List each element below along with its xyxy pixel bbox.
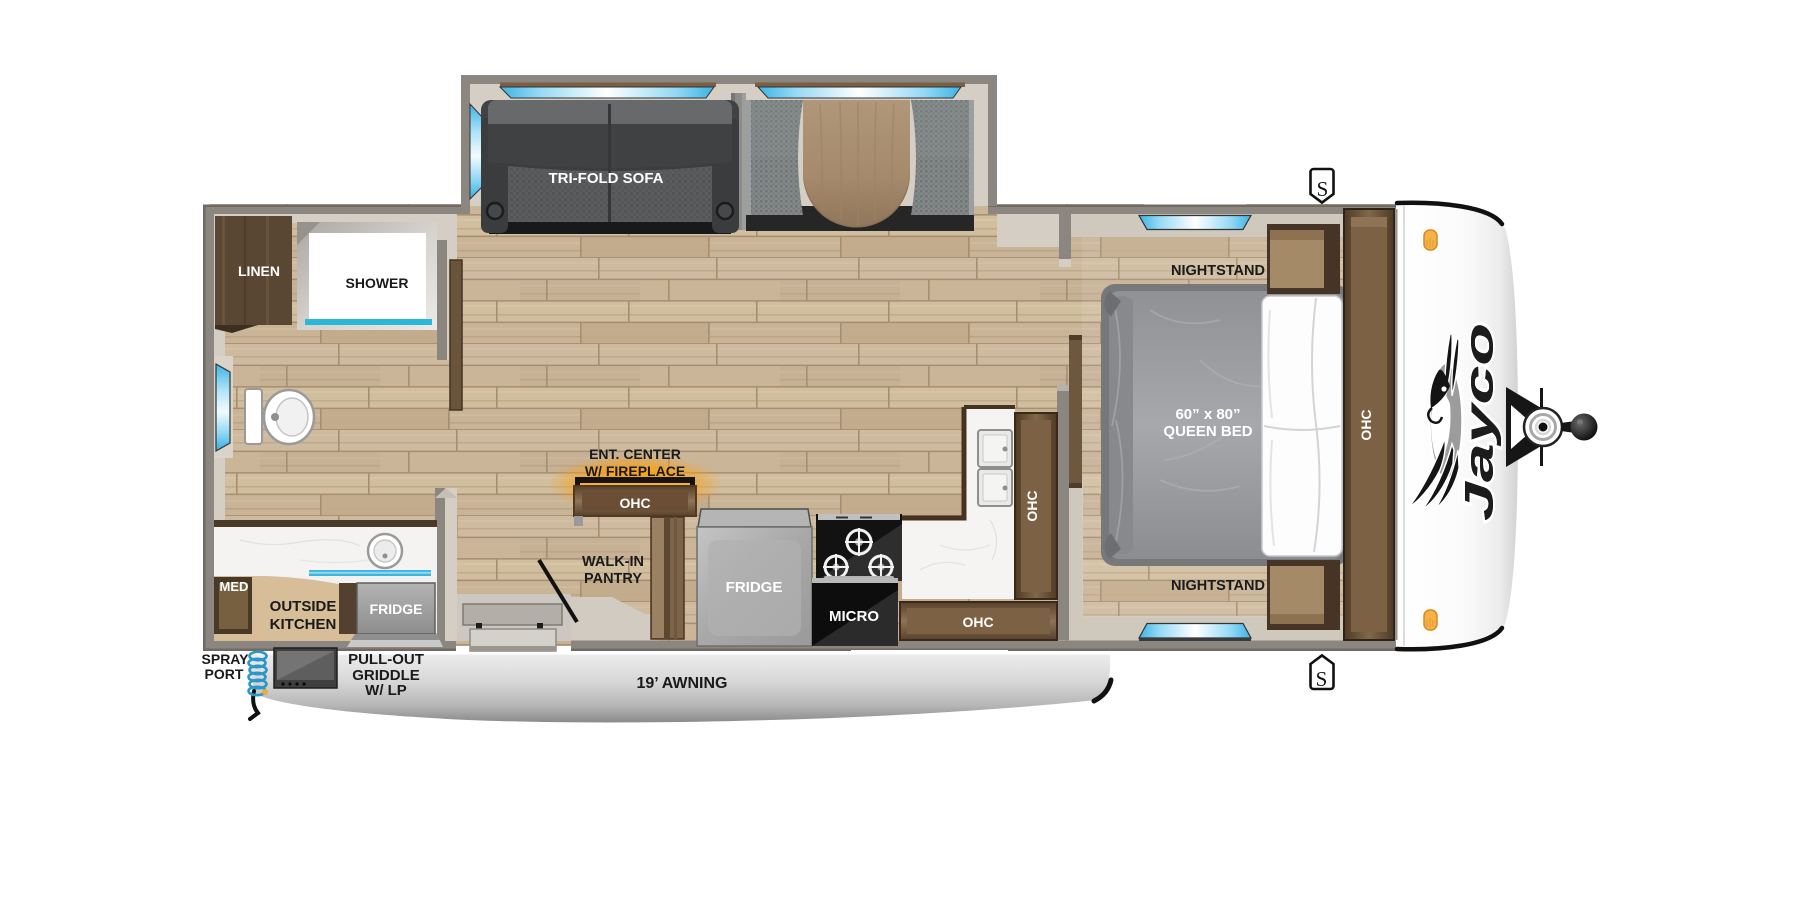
svg-text:NIGHTSTAND: NIGHTSTAND: [1171, 263, 1265, 279]
svg-text:Jayco: Jayco: [1458, 323, 1502, 521]
svg-text:PULL-OUT: PULL-OUT: [348, 651, 424, 668]
svg-text:OHC: OHC: [962, 614, 993, 630]
svg-text:NIGHTSTAND: NIGHTSTAND: [1171, 578, 1265, 594]
svg-text:KITCHEN: KITCHEN: [270, 616, 337, 633]
svg-text:OUTSIDE: OUTSIDE: [270, 598, 337, 615]
svg-text:OHC: OHC: [619, 495, 650, 511]
svg-text:FRIDGE: FRIDGE: [726, 579, 783, 596]
svg-text:19’ AWNING: 19’ AWNING: [637, 675, 728, 692]
svg-text:QUEEN BED: QUEEN BED: [1163, 423, 1252, 440]
svg-text:S: S: [1316, 667, 1328, 691]
svg-text:ENT. CENTER: ENT. CENTER: [589, 446, 681, 462]
svg-text:W/ FIREPLACE: W/ FIREPLACE: [585, 463, 685, 479]
svg-text:MED: MED: [220, 579, 249, 594]
svg-text:FRIDGE: FRIDGE: [370, 601, 423, 617]
svg-text:LINEN: LINEN: [238, 263, 280, 279]
svg-text:TRI-FOLD SOFA: TRI-FOLD SOFA: [549, 170, 664, 187]
svg-text:MICRO: MICRO: [829, 608, 879, 625]
svg-text:S: S: [1317, 177, 1329, 201]
svg-text:SHOWER: SHOWER: [346, 275, 409, 291]
svg-text:SPRAY: SPRAY: [202, 651, 250, 667]
svg-text:WALK-IN: WALK-IN: [582, 554, 644, 570]
svg-text:PORT: PORT: [205, 666, 244, 682]
svg-text:OHC: OHC: [1358, 409, 1374, 440]
svg-text:PANTRY: PANTRY: [584, 571, 642, 587]
svg-text:OHC: OHC: [1024, 490, 1040, 521]
svg-text:60” x 80”: 60” x 80”: [1175, 406, 1240, 423]
svg-text:W/ LP: W/ LP: [365, 682, 407, 699]
